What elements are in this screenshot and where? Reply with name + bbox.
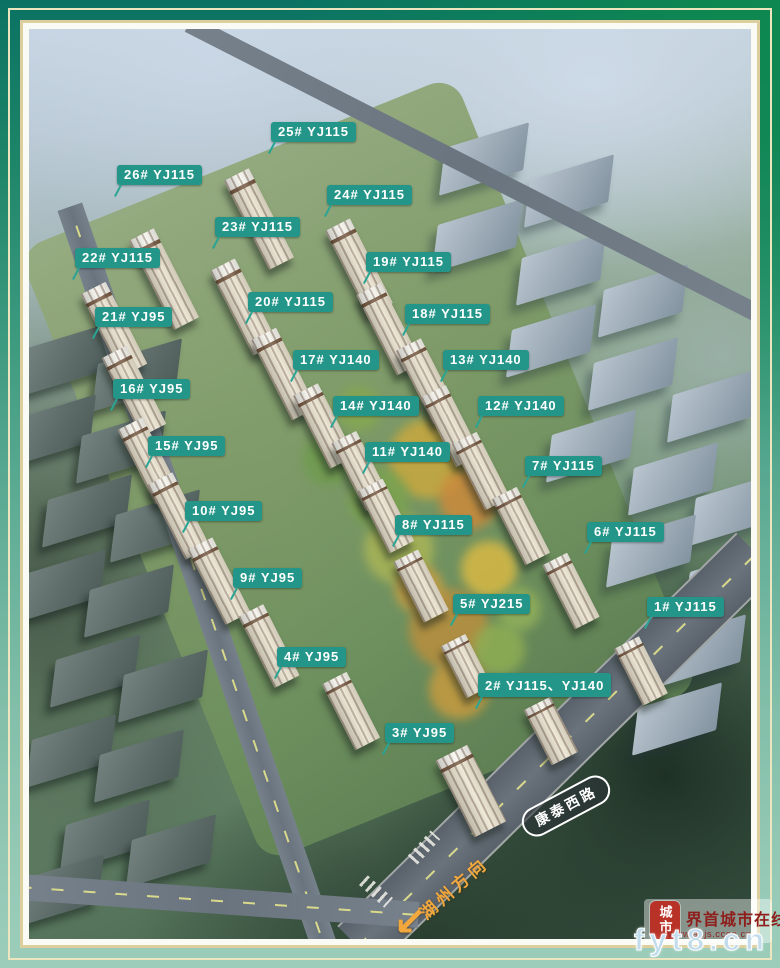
marketing-image-page: 康泰西路 湖州方向 ↙ 25# YJ11526# YJ11524# YJ1152… — [0, 0, 780, 968]
site-label: 2# YJ115、YJ140 — [478, 673, 611, 697]
site-label: 5# YJ215 — [453, 594, 530, 614]
warehouse-building — [667, 369, 751, 443]
site-label: 11# YJ140 — [365, 442, 450, 462]
site-label: 4# YJ95 — [277, 647, 346, 667]
site-label: 25# YJ115 — [271, 122, 356, 142]
site-label: 9# YJ95 — [233, 568, 302, 588]
site-label: 3# YJ95 — [385, 723, 454, 743]
site-label: 24# YJ115 — [327, 185, 412, 205]
site-label: 18# YJ115 — [405, 304, 490, 324]
site-label: 17# YJ140 — [293, 350, 379, 370]
site-label: 6# YJ115 — [587, 522, 664, 542]
watermark-big-url: fyt8.cn — [634, 922, 769, 958]
site-label: 23# YJ115 — [215, 217, 300, 237]
site-label: 13# YJ140 — [443, 350, 529, 370]
site-label: 26# YJ115 — [117, 165, 202, 185]
road-lane-marking — [29, 886, 419, 916]
site-label: 16# YJ95 — [113, 379, 190, 399]
site-label: 10# YJ95 — [185, 501, 262, 521]
site-label: 1# YJ115 — [647, 597, 724, 617]
aerial-site-plan: 康泰西路 湖州方向 ↙ 25# YJ11526# YJ11524# YJ1152… — [29, 29, 751, 939]
site-label: 15# YJ95 — [148, 436, 225, 456]
site-label: 14# YJ140 — [333, 396, 419, 416]
aerial-photo: 康泰西路 湖州方向 ↙ 25# YJ11526# YJ11524# YJ1152… — [23, 23, 757, 945]
site-label: 12# YJ140 — [478, 396, 564, 416]
site-label: 21# YJ95 — [95, 307, 172, 327]
site-label: 7# YJ115 — [525, 456, 602, 476]
warehouse-building — [588, 337, 678, 411]
site-label: 8# YJ115 — [395, 515, 472, 535]
site-label: 20# YJ115 — [248, 292, 333, 312]
direction-arrow-icon: ↙ — [393, 902, 427, 939]
site-label: 19# YJ115 — [366, 252, 451, 272]
site-label: 22# YJ115 — [75, 248, 160, 268]
